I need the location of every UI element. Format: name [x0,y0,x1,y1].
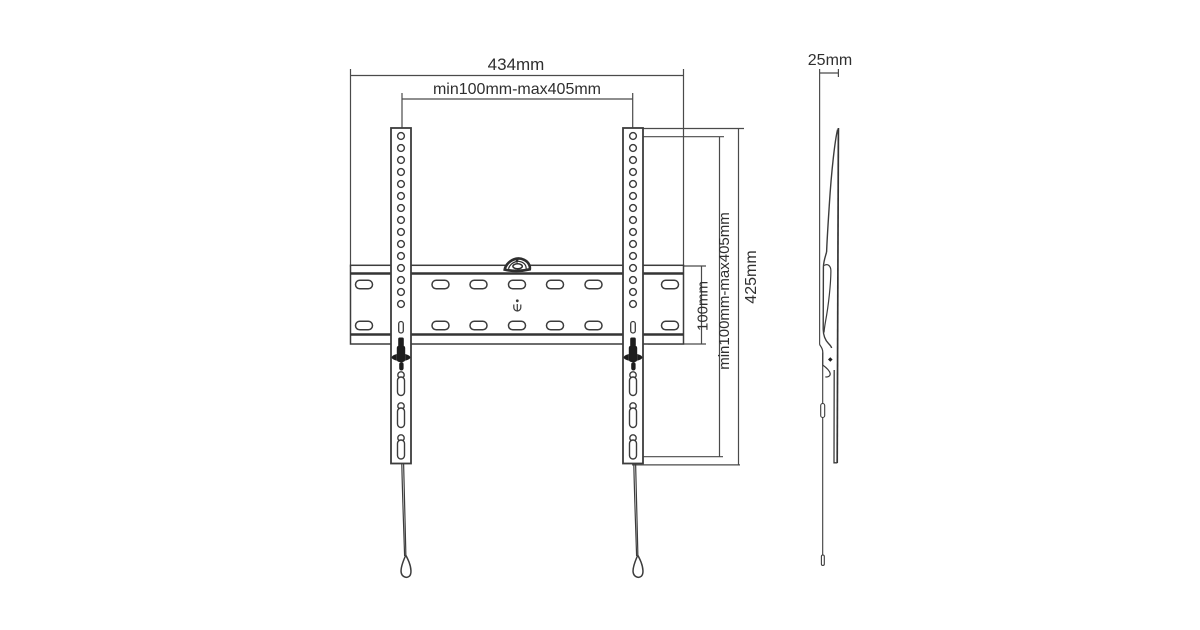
svg-text:25mm: 25mm [808,52,852,69]
svg-text:100mm: 100mm [695,281,712,331]
svg-text:min100mm-max405mm: min100mm-max405mm [433,81,601,98]
svg-text:425mm: 425mm [743,250,760,303]
svg-text:434mm: 434mm [488,55,545,74]
svg-text:min100mm-max405mm: min100mm-max405mm [716,212,733,370]
